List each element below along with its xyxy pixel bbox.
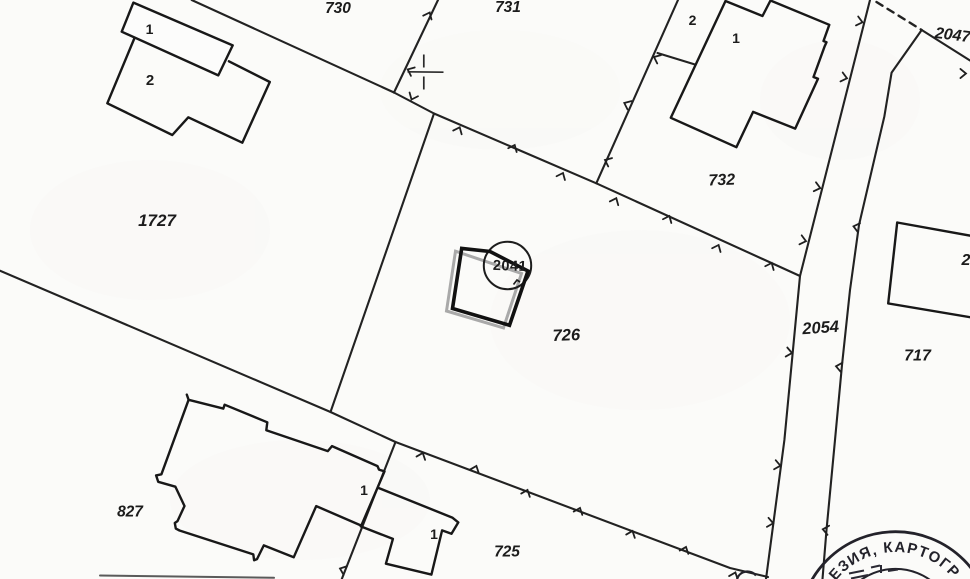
svg-text:717: 717 bbox=[904, 348, 932, 365]
svg-text:2054: 2054 bbox=[801, 318, 840, 339]
svg-text:725: 725 bbox=[494, 544, 520, 561]
svg-text:2041: 2041 bbox=[493, 258, 528, 275]
svg-text:732: 732 bbox=[708, 172, 735, 190]
svg-text:1: 1 bbox=[732, 30, 740, 46]
svg-text:827: 827 bbox=[117, 504, 144, 521]
svg-text:2: 2 bbox=[146, 72, 154, 89]
svg-text:1: 1 bbox=[360, 482, 368, 498]
svg-text:1: 1 bbox=[146, 21, 154, 37]
svg-text:726: 726 bbox=[552, 326, 581, 345]
svg-text:2: 2 bbox=[689, 12, 697, 28]
svg-text:2: 2 bbox=[961, 252, 970, 269]
svg-text:1727: 1727 bbox=[138, 211, 177, 230]
svg-text:1: 1 bbox=[430, 526, 438, 542]
svg-text:731: 731 bbox=[495, 0, 521, 16]
svg-text:730: 730 bbox=[325, 0, 351, 17]
